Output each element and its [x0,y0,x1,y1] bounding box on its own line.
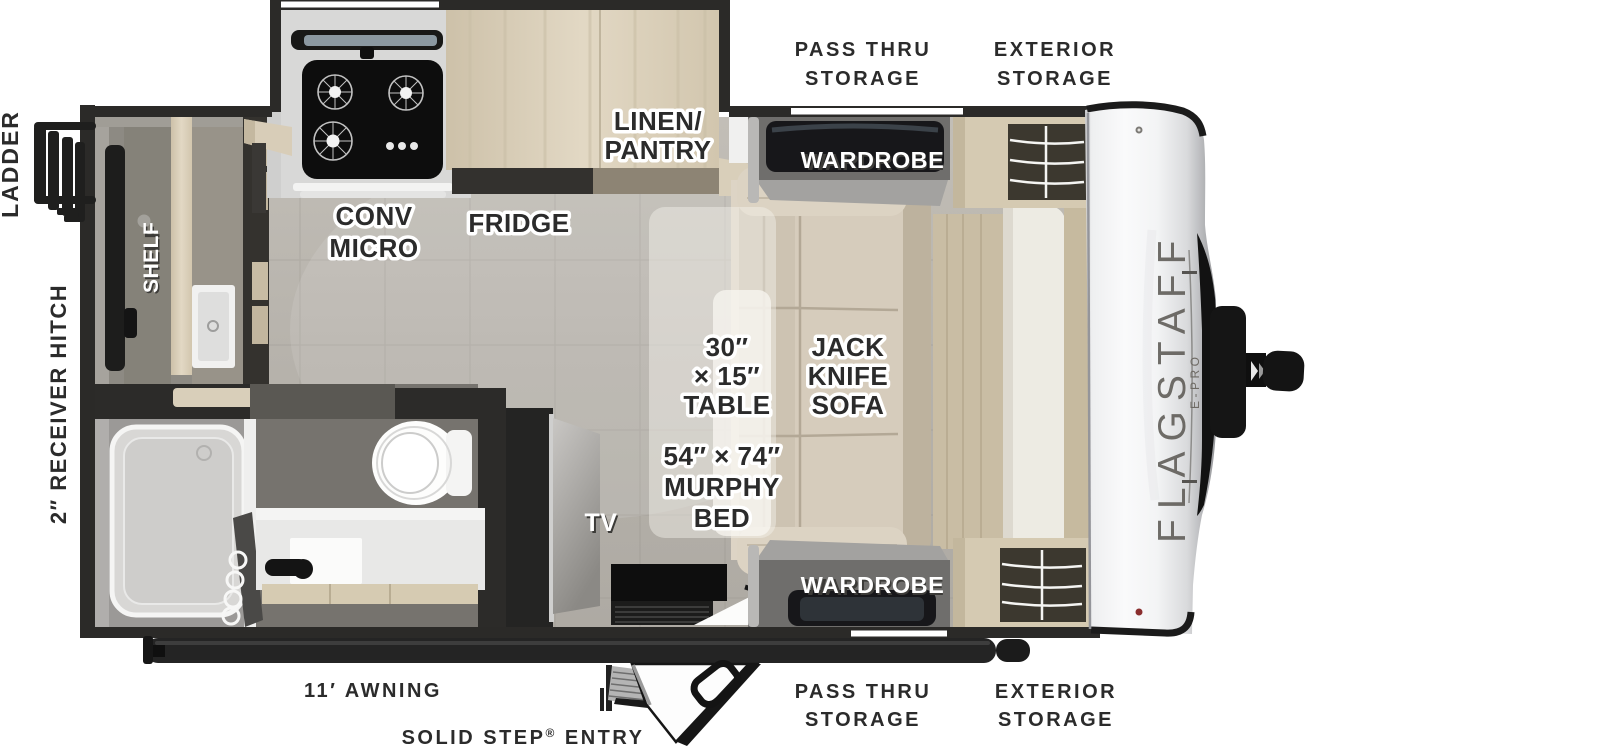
svg-text:KNIFE: KNIFE [808,361,889,391]
svg-text:PASS THRU: PASS THRU [795,39,932,61]
svg-text:WARDROBE: WARDROBE [801,147,945,173]
svg-text:STORAGE: STORAGE [997,68,1113,90]
svg-text:SHELF: SHELF [140,222,163,293]
svg-text:LINEN/: LINEN/ [614,106,702,136]
svg-text:JACK: JACK [812,332,885,362]
svg-text:STORAGE: STORAGE [805,68,921,90]
svg-text:PANTRY: PANTRY [605,135,712,165]
svg-text:TABLE: TABLE [683,390,770,420]
svg-text:30″: 30″ [706,332,749,362]
svg-text:LADDER: LADDER [0,110,23,218]
svg-text:11′ AWNING: 11′ AWNING [304,680,442,702]
svg-text:E-PRO: E-PRO [1188,353,1202,409]
svg-text:2″ RECEIVER HITCH: 2″ RECEIVER HITCH [46,284,71,524]
svg-text:BED: BED [694,503,750,533]
svg-text:MURPHY: MURPHY [664,472,780,502]
svg-text:WARDROBE: WARDROBE [801,572,945,598]
svg-text:STORAGE: STORAGE [998,709,1114,731]
svg-text:TV: TV [585,509,618,537]
svg-text:54″ × 74″: 54″ × 74″ [664,441,781,471]
svg-text:SOFA: SOFA [812,390,885,420]
svg-text:SOLID STEP® ENTRY: SOLID STEP® ENTRY [402,726,645,746]
svg-text:EXTERIOR: EXTERIOR [995,681,1117,703]
svg-text:STORAGE: STORAGE [805,709,921,731]
svg-text:PASS THRU: PASS THRU [795,681,932,703]
svg-text:× 15″: × 15″ [694,361,760,391]
svg-text:FRIDGE: FRIDGE [468,208,569,238]
svg-text:MICRO: MICRO [329,233,418,263]
svg-text:CONV: CONV [335,201,412,231]
svg-text:EXTERIOR: EXTERIOR [994,39,1116,61]
